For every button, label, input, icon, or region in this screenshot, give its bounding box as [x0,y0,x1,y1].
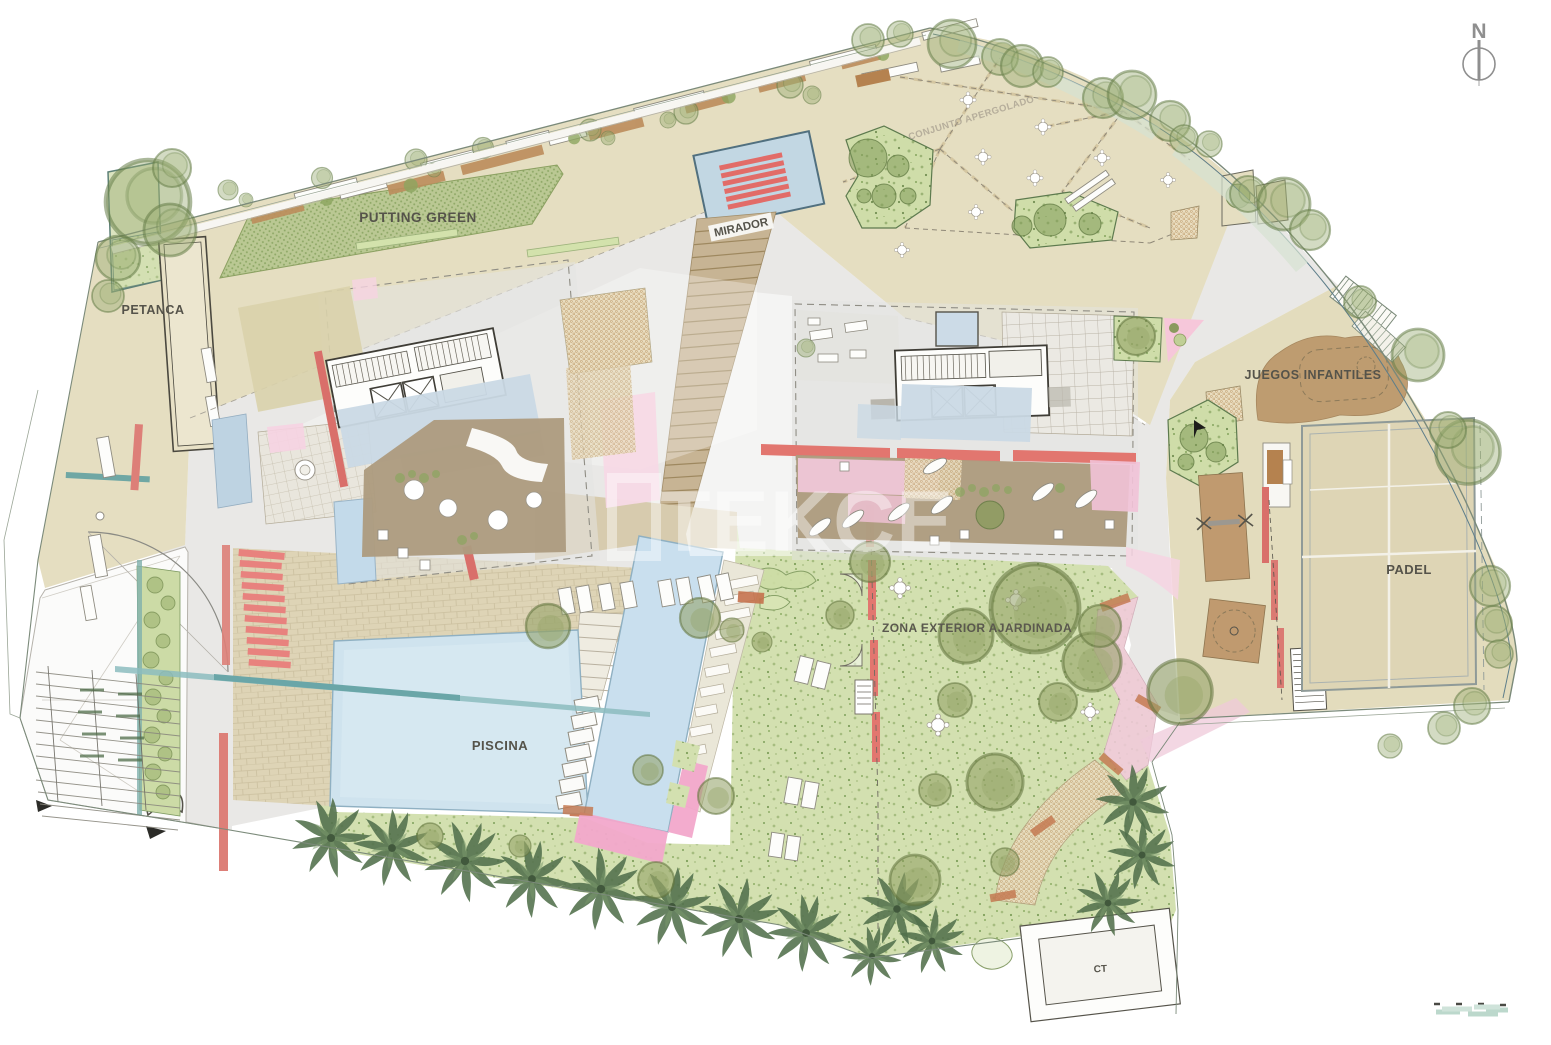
svg-text:CT: CT [1093,964,1107,976]
svg-text:N: N [1471,20,1486,43]
svg-text:JUEGOS INFANTILES: JUEGOS INFANTILES [1245,368,1382,382]
svg-text:ZONA EXTERIOR AJARDINADA: ZONA EXTERIOR AJARDINADA [882,621,1072,635]
svg-text:PUTTING GREEN: PUTTING GREEN [359,210,477,225]
svg-text:PISCINA: PISCINA [472,738,528,753]
svg-text:TEKCE: TEKCE [658,474,954,570]
svg-text:PETANCA: PETANCA [122,303,185,317]
svg-text:PADEL: PADEL [1386,562,1432,577]
